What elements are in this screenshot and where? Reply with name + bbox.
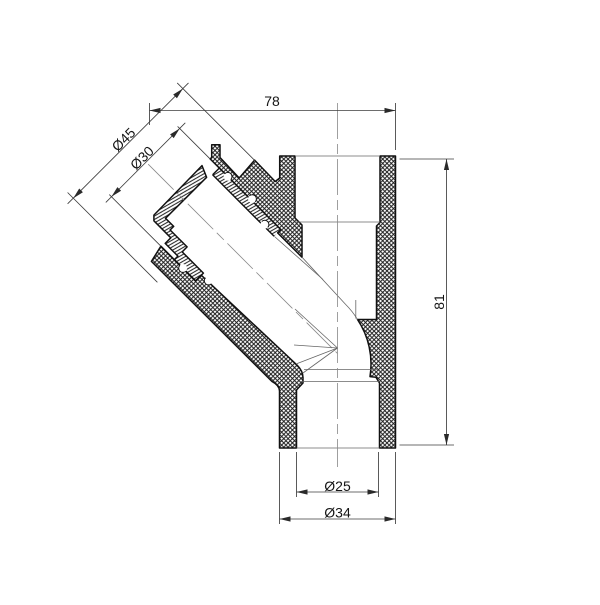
svg-text:Ø34: Ø34	[324, 505, 351, 521]
svg-text:81: 81	[431, 294, 447, 310]
svg-text:Ø25: Ø25	[324, 478, 351, 494]
svg-text:Ø45: Ø45	[108, 124, 138, 154]
svg-text:78: 78	[264, 93, 280, 109]
